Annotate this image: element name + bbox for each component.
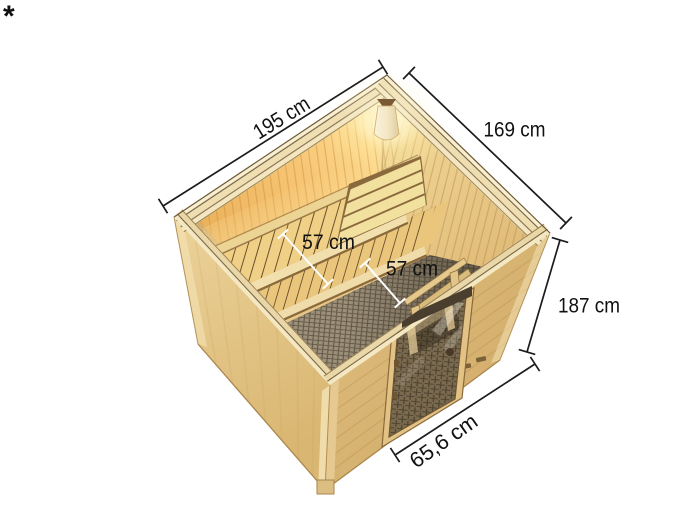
svg-text:169 cm: 169 cm: [484, 118, 546, 142]
svg-text:57 cm: 57 cm: [386, 258, 438, 281]
svg-text:*: *: [3, 0, 15, 33]
svg-text:57 cm: 57 cm: [302, 231, 355, 254]
svg-text:187 cm: 187 cm: [558, 294, 620, 318]
